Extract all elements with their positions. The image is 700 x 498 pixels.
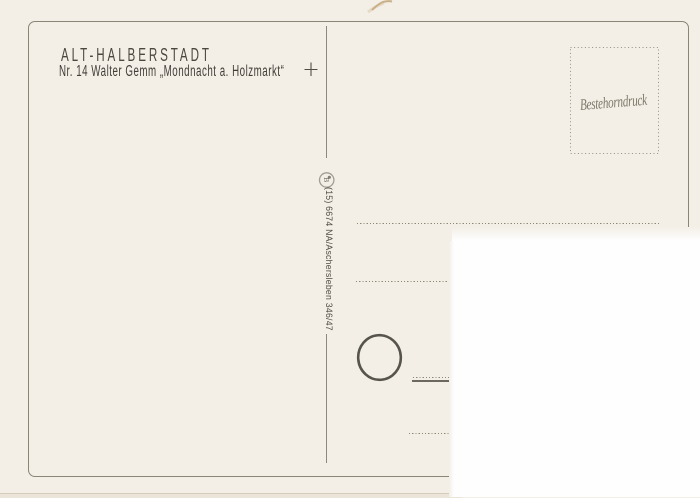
- svg-text:B: B: [322, 177, 331, 182]
